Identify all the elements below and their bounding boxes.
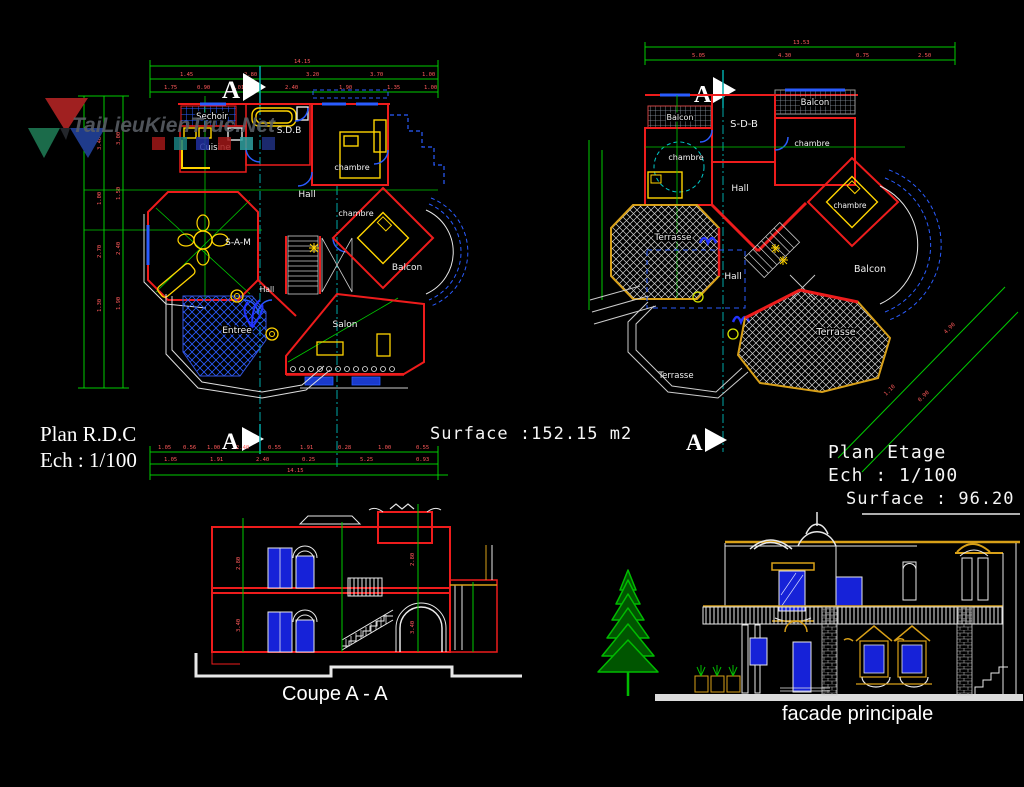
etage-section-marker-bottom: A <box>686 428 727 455</box>
facade-roof <box>725 512 1020 556</box>
room-label-balcon: Balcon <box>392 263 422 273</box>
plan-etage: 13.53 5.05 4.30 0.75 2.50 A A <box>589 40 1018 472</box>
rdc-dim: 1.75 <box>164 85 177 91</box>
room-label-chambre: chambre <box>794 139 829 148</box>
coupe-title: Coupe A - A <box>282 683 388 705</box>
rdc-dim: 3.20 <box>306 72 319 78</box>
facade-principale: facade principale <box>598 512 1023 725</box>
planters <box>695 665 740 692</box>
rdc-dim: 0.56 <box>183 445 196 451</box>
cad-drawing-sheet: 14.15 1.45 2.80 3.20 3.70 1.00 1.75 0.90… <box>0 0 1024 787</box>
rdc-dim: 0.55 <box>268 445 281 451</box>
rdc-dim: 1.00 <box>207 445 220 451</box>
rdc-stairs <box>286 236 352 294</box>
rdc-dim: 2.40 <box>236 445 249 451</box>
etage-title: Plan Etage <box>828 442 946 463</box>
rdc-dim: 2.40 <box>116 242 122 255</box>
rdc-dim: 1.45 <box>180 72 193 78</box>
rdc-dim: 3.70 <box>370 72 383 78</box>
rdc-dim: 1.91 <box>210 457 223 463</box>
rdc-dim: 1.00 <box>378 445 391 451</box>
rdc-dim: 1.05 <box>158 445 171 451</box>
room-label-terrasse: Terrasse <box>657 371 693 381</box>
facade-title: facade principale <box>782 703 933 725</box>
watermark-text: TaiLieuKienTruc.Net <box>72 114 276 137</box>
rdc-balcon-fan <box>426 198 468 306</box>
watermark: TaiLieuKienTruc.Net <box>28 98 276 158</box>
etage-dim: 4.90 <box>943 322 957 336</box>
watermark-square <box>152 137 165 150</box>
rdc-dim: 1.90 <box>116 297 122 310</box>
rdc-dim: 1.00 <box>422 72 435 78</box>
rdc-walls <box>178 90 444 185</box>
rdc-dim: 0.93 <box>416 457 429 463</box>
light-symbol <box>771 244 780 253</box>
watermark-square <box>240 137 253 150</box>
room-label-hall: Hall <box>731 184 748 194</box>
room-label-chambre: chambre <box>833 201 866 210</box>
rdc-dim-top-total: 14.15 <box>294 59 311 65</box>
rdc-dim: 1.30 <box>97 299 103 312</box>
rdc-dim: 2.40 <box>256 457 269 463</box>
section-arrow-icon <box>713 77 736 103</box>
etage-dim: 2.50 <box>918 53 931 59</box>
watermark-logo-icon <box>60 128 70 140</box>
etage-dim-lines-left <box>589 140 602 310</box>
rdc-dim: 0.25 <box>302 457 315 463</box>
room-label-terrasse: Terrasse <box>653 233 692 243</box>
room-label-hall: Hall <box>298 190 315 200</box>
section-arrow-icon <box>705 428 727 452</box>
lamp-symbol <box>728 329 738 339</box>
etage-scale: Ech : 1/100 <box>828 465 958 486</box>
rdc-title: Plan R.D.C <box>40 422 136 446</box>
rdc-dim: 0.55 <box>416 445 429 451</box>
rdc-dim-lines-top <box>150 60 438 98</box>
room-label-hall: Hall <box>260 285 274 294</box>
rdc-dim: 2.40 <box>285 85 298 91</box>
etage-dim: 0.75 <box>856 53 869 59</box>
coupe-doors <box>268 546 317 652</box>
etage-terrasse-lower <box>590 286 748 398</box>
rdc-dim: 1.50 <box>116 187 122 200</box>
room-label-hall: Hall <box>724 272 741 282</box>
room-label-sam: S-A-M <box>225 238 251 248</box>
rdc-dim: 5.25 <box>360 457 373 463</box>
rdc-chambre-diamond <box>333 188 433 288</box>
tree-icon <box>598 570 658 696</box>
stone-pillar <box>957 607 972 695</box>
section-letter: A <box>222 77 240 104</box>
watermark-square <box>174 137 187 150</box>
rdc-scale: Ech : 1/100 <box>40 448 137 472</box>
rdc-dim: 1.00 <box>97 192 103 205</box>
rdc-dim: 1.00 <box>424 85 437 91</box>
etage-terrasse-left-hatch <box>611 205 719 299</box>
rdc-salon <box>286 294 424 388</box>
room-label-terrasse: Terrasse <box>815 327 855 338</box>
coupe-dim: 3.40 <box>236 619 242 632</box>
etage-dim: 5.05 <box>692 53 705 59</box>
coupe-white-details <box>300 504 497 650</box>
rdc-bay-outline <box>390 115 444 185</box>
etage-terrasse-main <box>738 290 890 392</box>
light-symbol <box>779 256 788 265</box>
watermark-square <box>262 137 275 150</box>
room-label-sdb: S.D.B <box>277 126 302 136</box>
rdc-dim: 1.35 <box>387 85 400 91</box>
etage-dim: 0.90 <box>917 390 931 404</box>
rdc-surface: Surface :152.15 m2 <box>430 424 632 444</box>
rdc-dim: 2.70 <box>97 245 103 258</box>
room-label-salon: Salon <box>333 320 358 330</box>
rdc-dim: 0.28 <box>338 445 351 451</box>
room-label-chambre: chambre <box>338 209 373 218</box>
watermark-logo-icon <box>28 128 60 158</box>
room-label-chambre: chambre <box>334 163 369 172</box>
rdc-dim-lines-bottom <box>150 446 448 480</box>
watermark-square <box>218 137 231 150</box>
etage-section-marker-top: A <box>694 70 736 108</box>
room-label-balcon: Balcon <box>801 98 830 108</box>
watermark-square <box>196 137 209 150</box>
coupe-stairs-arch <box>342 578 446 652</box>
rdc-dim: 1.05 <box>164 457 177 463</box>
room-label-sdb: S-D-B <box>730 119 758 130</box>
etage-dim: 4.30 <box>778 53 791 59</box>
coupe-dim: 2.80 <box>236 557 242 570</box>
rdc-dim: 0.90 <box>197 85 210 91</box>
room-label-balcon: Balcon <box>667 113 694 122</box>
rdc-dim: 1.91 <box>300 445 313 451</box>
rdc-dim-bottom-total: 14.15 <box>287 468 304 474</box>
facade-pagoda-windows <box>844 626 932 687</box>
section-letter: A <box>686 430 703 455</box>
room-label-chambre: chambre <box>668 153 703 162</box>
coupe-ground-line <box>196 653 522 676</box>
light-symbol <box>309 243 319 253</box>
coupe-dim: 3.40 <box>410 621 416 634</box>
coupe-aa: 2.80 3.40 2.80 3.40 Coupe A - A <box>196 504 522 705</box>
stone-pillar <box>822 607 837 695</box>
etage-dim-total: 13.53 <box>793 40 810 46</box>
coupe-dim: 2.80 <box>410 553 416 566</box>
cad-svg: 14.15 1.45 2.80 3.20 3.70 1.00 1.75 0.90… <box>0 0 1024 787</box>
room-label-balcon: Balcon <box>854 264 886 275</box>
etage-dim: 1.10 <box>883 384 897 398</box>
room-label-entree: Entree <box>222 326 252 336</box>
etage-surface: Surface : 96.20 m2 <box>846 489 1024 509</box>
lamp-symbol <box>266 328 278 340</box>
